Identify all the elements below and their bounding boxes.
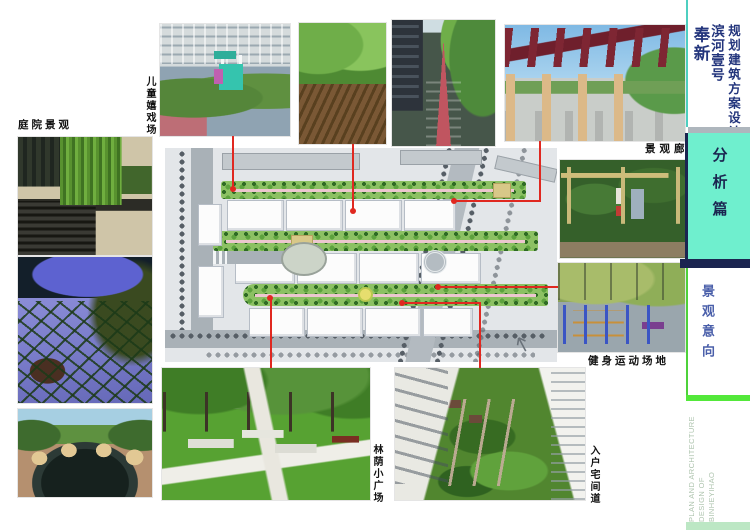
plan-building [198, 266, 224, 318]
plan-existing-building [400, 150, 482, 165]
plan-existing-building [222, 153, 360, 170]
leader-dot [451, 198, 457, 204]
photo-courtyard-garden [18, 137, 152, 255]
plan-building [198, 204, 222, 246]
plan-garden-path [226, 240, 525, 243]
sidebar-cyan-rule [686, 0, 688, 127]
plan-building [359, 253, 419, 284]
leader-dot [435, 284, 441, 290]
section-badge: 分析篇 [685, 133, 750, 259]
plan-green-strip-middle [213, 231, 538, 251]
label-children-play: 儿童嬉戏场 [142, 76, 157, 136]
section-badge-label: 分析篇 [709, 133, 730, 259]
photo-entry-path [395, 368, 585, 500]
plan-building [227, 200, 284, 231]
leader-line-fitness [440, 286, 558, 288]
leader-dot [267, 295, 273, 301]
plan-building [307, 308, 363, 337]
label-gallery: 景观廊 [645, 141, 689, 156]
photo-wood-boardwalk [299, 23, 386, 144]
plan-playground-spot [493, 183, 511, 198]
leader-line-plaza [270, 299, 272, 368]
leader-line-boardwalk [352, 144, 354, 211]
leader-line-pergola-v [539, 141, 541, 202]
plan-building [286, 200, 343, 231]
plan-garden-path [255, 294, 536, 297]
photo-children-playground [160, 24, 290, 136]
leader-line-entrypath-v [479, 302, 481, 368]
photo-pergola-gallery [505, 25, 685, 141]
photo-exercise-bars [560, 160, 685, 258]
sidebar-green-rule [686, 268, 688, 396]
label-shaded-plaza: 林荫小广场 [369, 444, 384, 504]
plan-road-west [191, 148, 213, 348]
footer-line: BINHEYIHAO [707, 402, 717, 522]
plan-building [404, 200, 456, 231]
page-title: 景观意向 [698, 284, 717, 364]
sidebar-green-bar [686, 395, 750, 401]
footer-line: DESIGN OF [697, 402, 707, 522]
plan-circular-lawn [358, 287, 373, 302]
project-location-title: 奉新 [688, 26, 712, 63]
label-courtyard: 庭院景观 [18, 117, 72, 132]
leader-dot [399, 300, 405, 306]
presentation-board: 庭院景观 儿童嬉戏场 景观廊 健身运动场地 林荫小广场 入户宅间道 [0, 0, 750, 530]
plan-green-strip-north [221, 181, 526, 199]
plan-building [365, 308, 421, 337]
footer-line: PLAN AND ARCHITECTURE [687, 402, 697, 522]
plan-building [249, 308, 305, 337]
plan-crosswalk [213, 251, 227, 264]
leader-line-pergola-h [455, 200, 541, 202]
project-type-title: 规划建筑方案设计 [724, 24, 743, 140]
plan-entrance-road [191, 251, 291, 264]
sidebar-bottom-strip [686, 522, 750, 530]
photo-fountain [18, 409, 152, 497]
plan-tree-row [178, 150, 187, 342]
site-plan [165, 148, 557, 362]
photo-night-stone-courtyard [18, 257, 152, 403]
sidebar-navy-bar [680, 259, 750, 268]
leader-dot [350, 208, 356, 214]
photo-shaded-plaza [162, 368, 370, 500]
photo-fitness-equipment [558, 263, 685, 352]
label-fitness: 健身运动场地 [588, 353, 669, 368]
plan-entrance-oval [281, 242, 327, 276]
photo-red-brick-path [392, 20, 495, 146]
leader-line-playground [232, 136, 234, 189]
plan-roundabout [423, 250, 447, 274]
plan-building [423, 308, 473, 337]
plan-tree-row [205, 351, 535, 359]
footer-english-title: PLAN AND ARCHITECTURE DESIGN OF BINHEYIH… [687, 402, 721, 522]
plan-garden-path [233, 189, 514, 192]
leader-line-entrypath-h [404, 302, 481, 304]
label-entry-path: 入户宅间道 [586, 445, 601, 505]
leader-dot [230, 186, 236, 192]
